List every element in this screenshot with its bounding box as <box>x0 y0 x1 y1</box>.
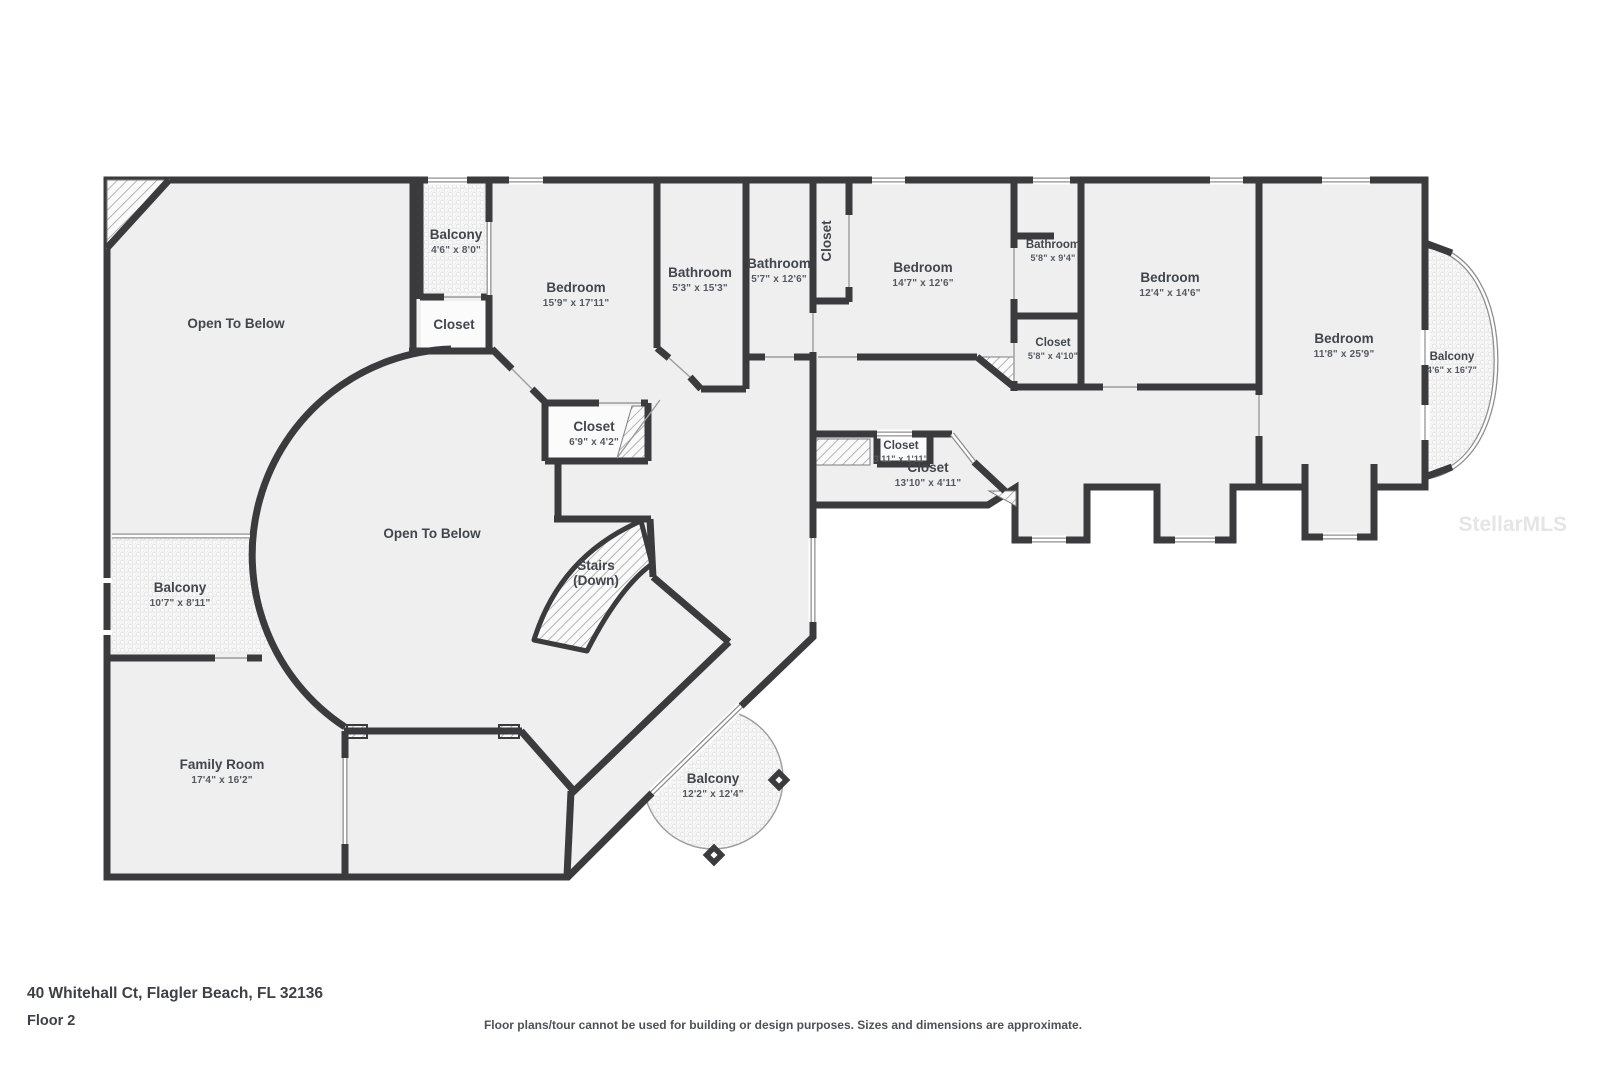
svg-text:Open To Below: Open To Below <box>187 316 285 331</box>
room-label-bedroom-2: Bedroom14'7" x 12'6" <box>892 260 953 289</box>
floor-plan-canvas: Open To BelowBalcony4'6" x 8'0"ClosetBed… <box>0 0 1600 1066</box>
svg-text:Family Room: Family Room <box>180 757 265 772</box>
watermark: StellarMLS <box>1458 513 1567 536</box>
svg-text:12'2" x 12'4": 12'2" x 12'4" <box>682 789 743 800</box>
svg-text:Bedroom: Bedroom <box>1140 270 1199 285</box>
room-label-bedroom-1: Bedroom15'9" x 17'11" <box>543 280 610 309</box>
svg-text:Stairs: Stairs <box>577 558 615 573</box>
svg-text:Bedroom: Bedroom <box>1314 331 1373 346</box>
svg-text:Closet: Closet <box>573 419 615 434</box>
svg-text:12'4" x 14'6": 12'4" x 14'6" <box>1139 288 1200 299</box>
svg-text:Balcony: Balcony <box>430 227 483 242</box>
svg-text:15'9" x 17'11": 15'9" x 17'11" <box>543 298 610 309</box>
room-label-bedroom-4: Bedroom11'8" x 25'9" <box>1314 331 1375 360</box>
room-label-open-to-below-main: Open To Below <box>383 526 481 541</box>
room-label-closet-balcony-top: Closet <box>433 317 475 332</box>
room-label-bathroom-1: Bathroom5'3" x 15'3" <box>668 265 732 294</box>
room-label-open-to-below-upper: Open To Below <box>187 316 285 331</box>
room-label-balcony-left: Balcony10'7" x 8'11" <box>150 580 211 609</box>
svg-text:5'8" x 9'4": 5'8" x 9'4" <box>1030 253 1075 263</box>
wall-notch <box>103 578 112 583</box>
svg-text:14'7" x 12'6": 14'7" x 12'6" <box>892 278 953 289</box>
svg-text:Closet: Closet <box>819 220 834 262</box>
disclaimer-text: Floor plans/tour cannot be used for buil… <box>484 1018 1082 1032</box>
svg-text:4'6" x 16'7": 4'6" x 16'7" <box>1427 365 1477 375</box>
svg-text:Closet: Closet <box>907 460 949 475</box>
svg-text:Balcony: Balcony <box>1430 351 1475 363</box>
svg-text:Bathroom: Bathroom <box>1026 239 1080 251</box>
svg-text:Bedroom: Bedroom <box>893 260 952 275</box>
svg-text:Balcony: Balcony <box>687 771 740 786</box>
svg-text:Closet: Closet <box>433 317 475 332</box>
floor-plan-page: Open To BelowBalcony4'6" x 8'0"ClosetBed… <box>0 0 1600 1066</box>
svg-text:17'4" x 16'2": 17'4" x 16'2" <box>191 775 252 786</box>
svg-text:Bedroom: Bedroom <box>546 280 605 295</box>
svg-text:(Down): (Down) <box>573 573 619 588</box>
svg-text:Balcony: Balcony <box>154 580 207 595</box>
room-label-balcony-top: Balcony4'6" x 8'0" <box>430 227 483 256</box>
room-label-balcony-round: Balcony12'2" x 12'4" <box>682 771 743 800</box>
svg-text:13'10" x 4'11": 13'10" x 4'11" <box>895 478 962 489</box>
room-label-closet-2: Closet6'9" x 4'2" <box>569 419 619 448</box>
svg-text:4'6" x 8'0": 4'6" x 8'0" <box>431 245 481 256</box>
svg-text:5'7" x 12'6": 5'7" x 12'6" <box>751 274 807 285</box>
room-label-bathroom-2: Bathroom5'7" x 12'6" <box>747 256 811 285</box>
wall-notch <box>103 630 112 635</box>
floor-label: Floor 2 <box>27 1013 75 1029</box>
room-label-bedroom-3: Bedroom12'4" x 14'6" <box>1139 270 1200 299</box>
svg-text:Bathroom: Bathroom <box>747 256 811 271</box>
address-text: 40 Whitehall Ct, Flagler Beach, FL 32136 <box>27 985 323 1002</box>
svg-text:Closet: Closet <box>883 440 918 452</box>
svg-text:Open To Below: Open To Below <box>383 526 481 541</box>
svg-text:10'7" x 8'11": 10'7" x 8'11" <box>150 598 211 609</box>
room-label-stairs: Stairs(Down) <box>573 558 619 588</box>
room-label-family-room: Family Room17'4" x 16'2" <box>180 757 265 786</box>
svg-text:5'3" x 15'3": 5'3" x 15'3" <box>672 283 728 294</box>
svg-text:Bathroom: Bathroom <box>668 265 732 280</box>
svg-text:6'9" x 4'2": 6'9" x 4'2" <box>569 437 619 448</box>
svg-text:Closet: Closet <box>1035 337 1070 349</box>
svg-text:11'8" x 25'9": 11'8" x 25'9" <box>1314 349 1375 360</box>
svg-text:5'8" x 4'10": 5'8" x 4'10" <box>1028 351 1078 361</box>
room-label-closet-vertical: Closet <box>819 220 834 262</box>
